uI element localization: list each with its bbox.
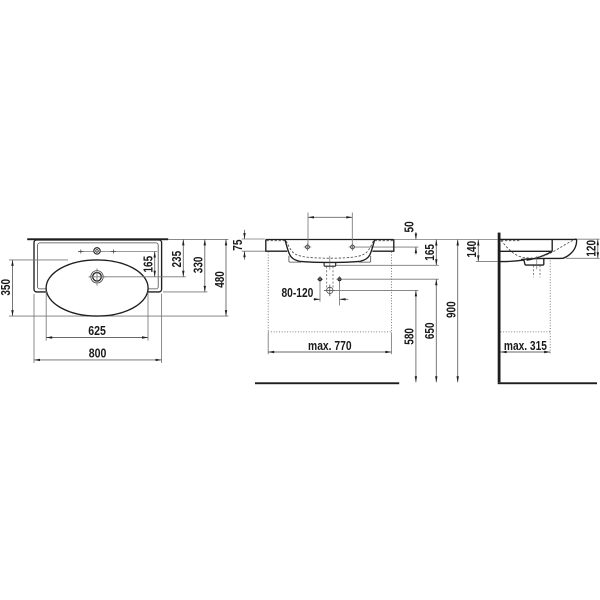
svg-text:165: 165 <box>423 244 437 261</box>
svg-text:625: 625 <box>88 324 106 338</box>
svg-text:120: 120 <box>585 240 599 257</box>
svg-text:800: 800 <box>89 347 107 361</box>
svg-text:580: 580 <box>403 328 417 345</box>
svg-text:350: 350 <box>0 279 13 296</box>
svg-text:330: 330 <box>192 257 206 274</box>
svg-text:650: 650 <box>423 323 437 340</box>
svg-text:480: 480 <box>213 271 227 288</box>
svg-text:max. 315: max. 315 <box>504 339 547 353</box>
svg-text:900: 900 <box>445 301 459 318</box>
svg-text:235: 235 <box>170 251 184 268</box>
svg-text:140: 140 <box>465 241 479 258</box>
svg-text:50: 50 <box>403 221 417 232</box>
svg-text:80-120: 80-120 <box>282 286 314 300</box>
svg-text:75: 75 <box>231 240 245 251</box>
svg-text:max. 770: max. 770 <box>308 339 352 353</box>
svg-text:165: 165 <box>142 256 156 273</box>
